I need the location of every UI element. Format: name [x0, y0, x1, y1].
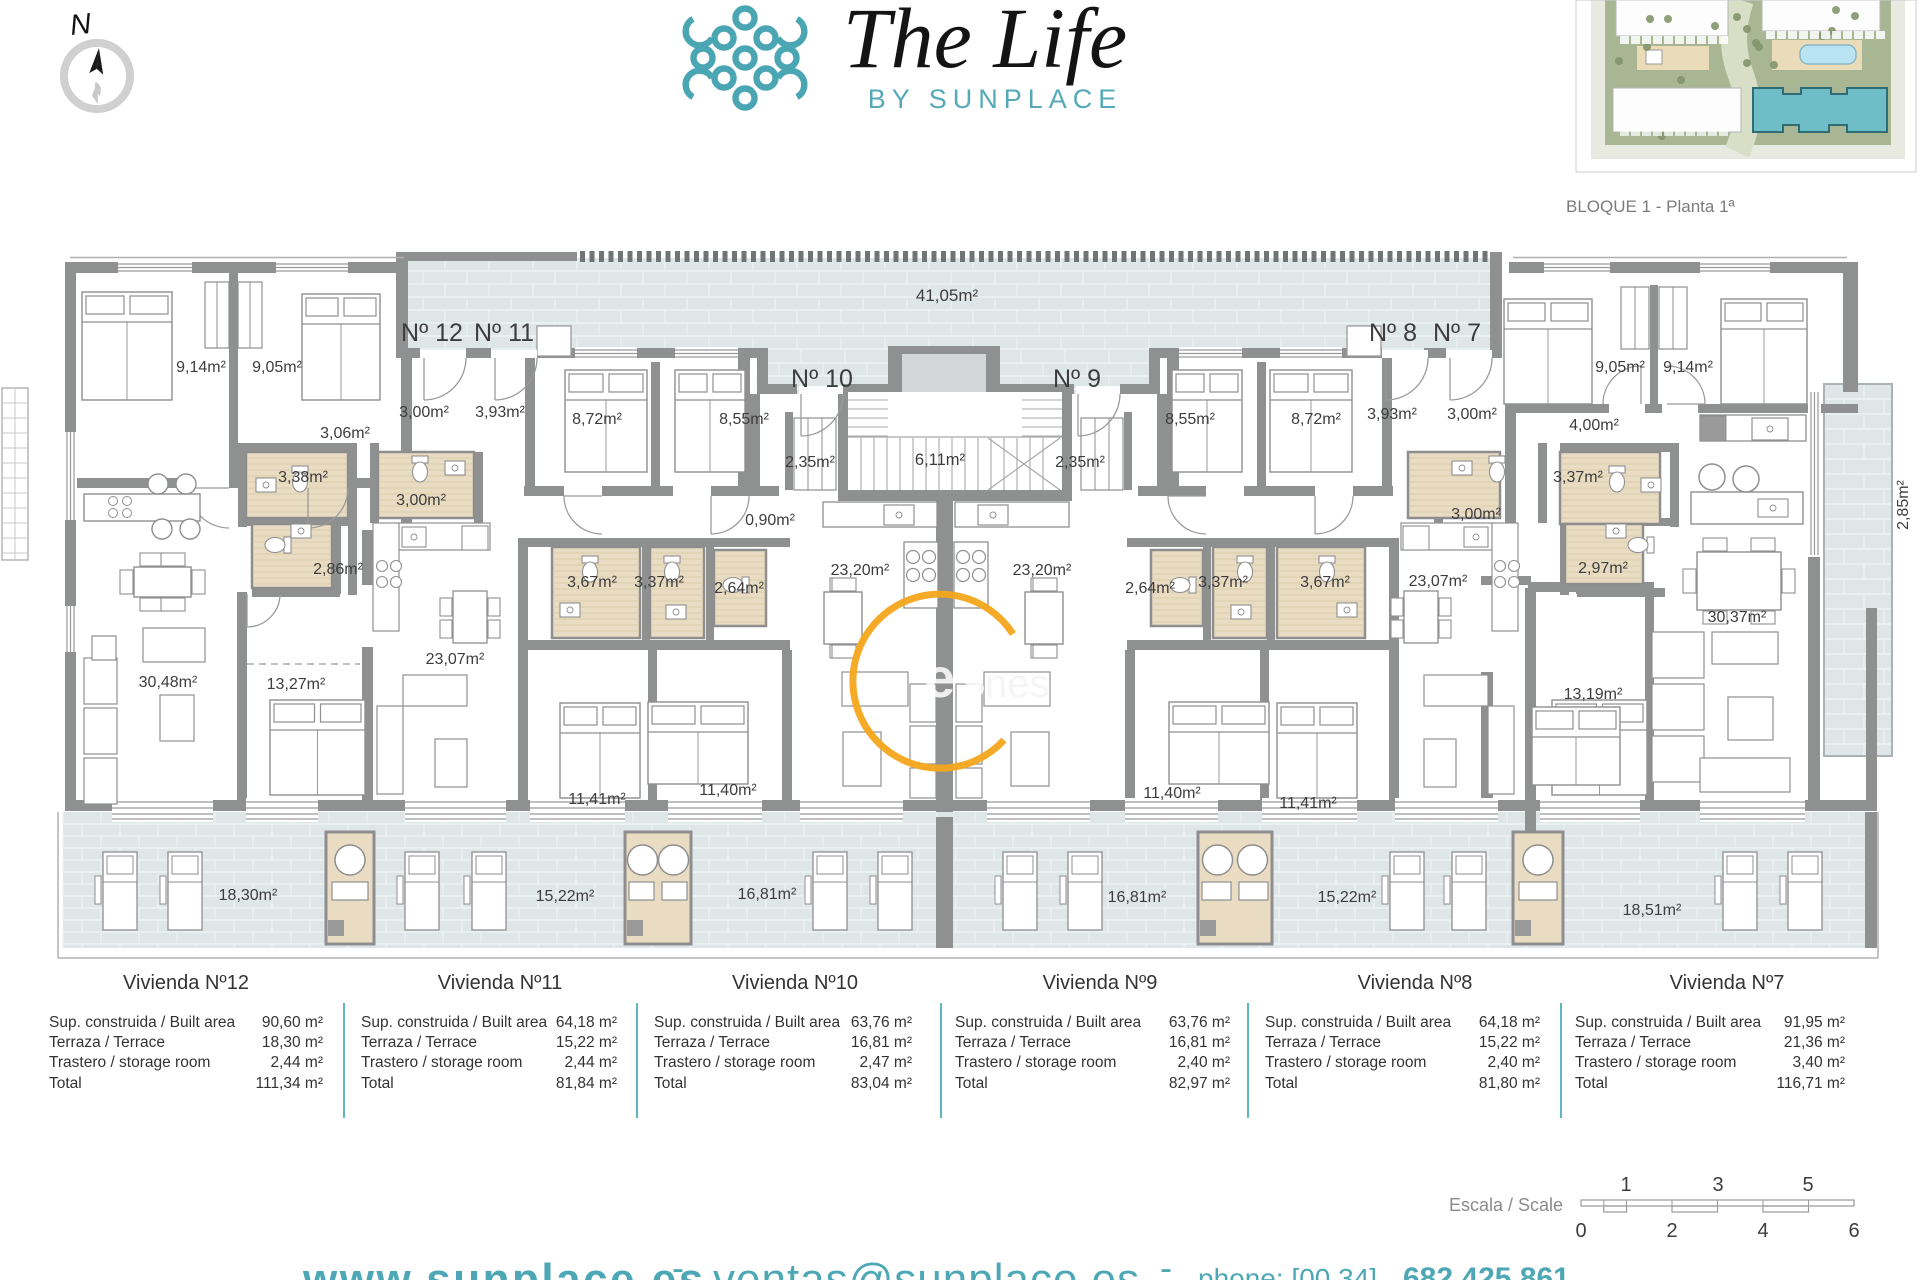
svg-text:Escala / Scale: Escala / Scale: [1449, 1195, 1563, 1215]
svg-text:11,40m²: 11,40m²: [699, 782, 757, 799]
svg-text:3,06m²: 3,06m²: [320, 425, 370, 442]
svg-text:3,00m²: 3,00m²: [399, 404, 449, 421]
svg-text:3,93m²: 3,93m²: [1367, 406, 1417, 423]
svg-text:Nº 10: Nº 10: [791, 365, 853, 393]
svg-text:15,22m²: 15,22m²: [536, 888, 595, 905]
svg-text:2,97m²: 2,97m²: [1578, 560, 1628, 577]
svg-text:3,67m²: 3,67m²: [1300, 574, 1350, 591]
svg-text:23,20m²: 23,20m²: [1013, 562, 1072, 579]
svg-text:2: 2: [1666, 1220, 1677, 1242]
svg-text:18,30m²: 18,30m²: [219, 887, 278, 904]
svg-text:3,00m²: 3,00m²: [1447, 406, 1497, 423]
svg-text:3,37m²: 3,37m²: [634, 574, 684, 591]
svg-text:5: 5: [1802, 1174, 1813, 1196]
svg-text:8,55m²: 8,55m²: [719, 411, 769, 428]
svg-text:3,00m²: 3,00m²: [396, 492, 446, 509]
svg-text:8,72m²: 8,72m²: [1291, 411, 1341, 428]
svg-text:Nº 7: Nº 7: [1433, 319, 1481, 347]
svg-text:2,35m²: 2,35m²: [1055, 454, 1105, 471]
svg-text:3,93m²: 3,93m²: [475, 404, 525, 421]
svg-text:4: 4: [1757, 1220, 1768, 1242]
svg-text:3,00m²: 3,00m²: [1451, 506, 1501, 523]
svg-text:4,00m²: 4,00m²: [1569, 417, 1619, 434]
svg-text:30,48m²: 30,48m²: [139, 674, 198, 691]
svg-text:6,11m²: 6,11m²: [915, 451, 966, 469]
svg-text:2,64m²: 2,64m²: [1125, 580, 1175, 597]
svg-text:16,81m²: 16,81m²: [1108, 889, 1167, 906]
svg-text:3,37m²: 3,37m²: [1198, 574, 1248, 591]
svg-text:3,38m²: 3,38m²: [278, 469, 328, 486]
svg-text:N: N: [68, 8, 92, 42]
svg-text:2,86m²: 2,86m²: [313, 561, 363, 578]
svg-text:8,72m²: 8,72m²: [572, 411, 622, 428]
svg-text:Nº 11: Nº 11: [474, 319, 534, 347]
svg-text:0,90m²: 0,90m²: [745, 512, 795, 529]
svg-text:11,41m²: 11,41m²: [1279, 795, 1337, 812]
svg-text:11,41m²: 11,41m²: [568, 791, 626, 808]
svg-text:Nº 8: Nº 8: [1369, 319, 1417, 347]
svg-text:13,27m²: 13,27m²: [267, 676, 326, 693]
svg-text:15,22m²: 15,22m²: [1318, 889, 1377, 906]
svg-text:3,37m²: 3,37m²: [1553, 469, 1603, 486]
svg-text:nes: nes: [985, 662, 1050, 706]
svg-text:3,67m²: 3,67m²: [567, 574, 617, 591]
svg-text:9,05m²: 9,05m²: [252, 359, 302, 376]
svg-text:30,37m²: 30,37m²: [1708, 609, 1767, 626]
svg-text:11,40m²: 11,40m²: [1143, 785, 1201, 802]
svg-text:23,20m²: 23,20m²: [831, 562, 890, 579]
svg-text:Nº 9: Nº 9: [1053, 365, 1101, 393]
svg-text:41,05m²: 41,05m²: [916, 286, 979, 305]
svg-text:es: es: [924, 646, 986, 709]
svg-text:1: 1: [1620, 1174, 1631, 1196]
svg-text:16,81m²: 16,81m²: [738, 886, 797, 903]
svg-text:3: 3: [1712, 1174, 1723, 1196]
svg-text:8,55m²: 8,55m²: [1165, 411, 1215, 428]
svg-text:2,85m²: 2,85m²: [1895, 479, 1912, 529]
svg-text:2,64m²: 2,64m²: [714, 580, 764, 597]
svg-text:9,14m²: 9,14m²: [176, 359, 226, 376]
svg-text:2,35m²: 2,35m²: [785, 454, 835, 471]
svg-text:0: 0: [1575, 1220, 1586, 1242]
svg-text:9,05m²: 9,05m²: [1595, 359, 1645, 376]
svg-text:6: 6: [1848, 1220, 1859, 1242]
svg-text:18,51m²: 18,51m²: [1623, 902, 1682, 919]
svg-text:23,07m²: 23,07m²: [1409, 573, 1468, 590]
svg-text:13,19m²: 13,19m²: [1564, 686, 1623, 703]
svg-text:23,07m²: 23,07m²: [426, 651, 485, 668]
svg-text:9,14m²: 9,14m²: [1663, 359, 1713, 376]
svg-text:Nº 12: Nº 12: [401, 319, 463, 347]
